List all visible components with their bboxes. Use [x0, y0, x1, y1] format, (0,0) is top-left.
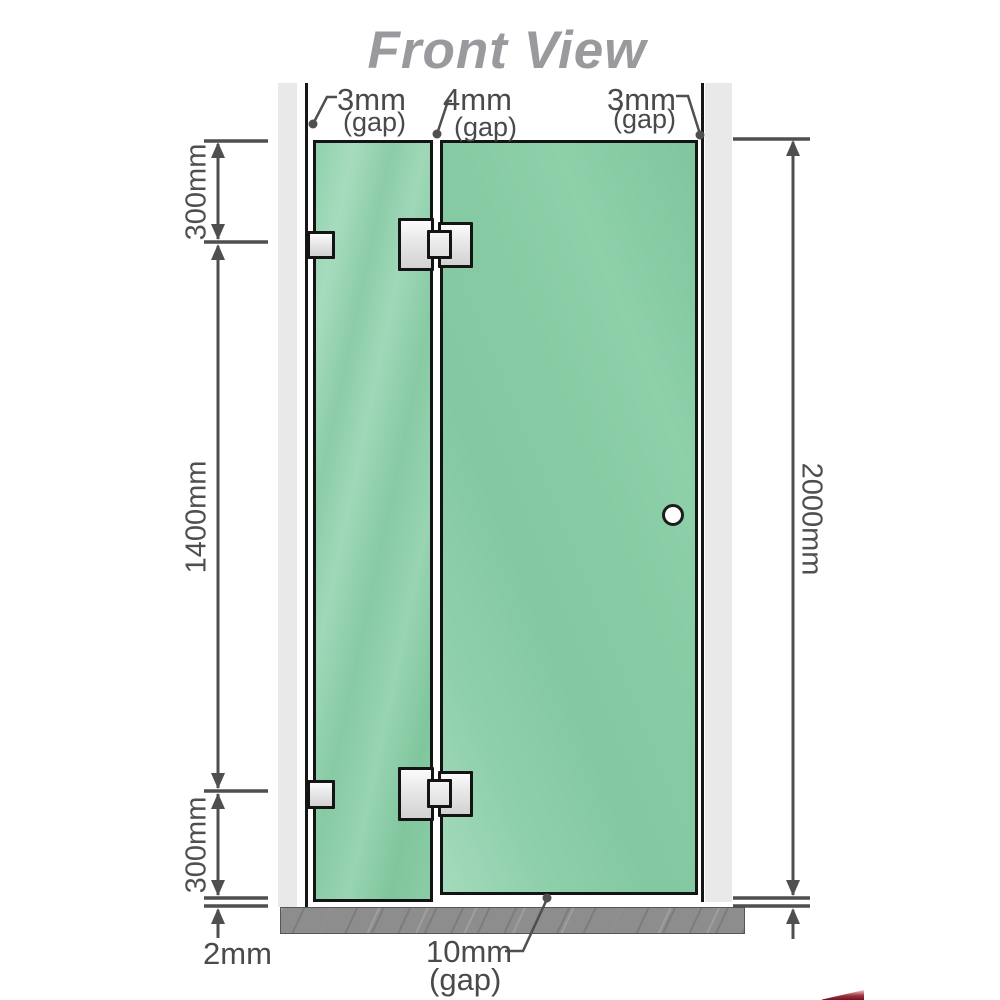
dimension-bottom-300mm: 300mm — [181, 797, 214, 894]
page-title: Front View — [368, 20, 647, 81]
shower-screen-front-view-diagram: Front View — [0, 0, 1000, 1000]
left-wall-channel — [278, 83, 297, 907]
gap-label-left-note: (gap) — [343, 107, 406, 138]
dimension-floor-clearance-2mm: 2mm — [203, 936, 272, 972]
door-knob — [662, 504, 684, 526]
hinge-bottom-clamp-icon — [427, 779, 452, 808]
left-dimension-chain — [204, 141, 268, 938]
dimension-middle-1400mm: 1400mm — [181, 461, 214, 574]
floor-base — [280, 907, 745, 934]
wall-bracket-bottom-icon — [307, 780, 335, 809]
gap-label-middle-note: (gap) — [454, 112, 517, 143]
dimension-overall-2000mm: 2000mm — [795, 463, 828, 576]
right-wall-edge-line — [701, 83, 704, 902]
wall-bracket-top-icon — [307, 231, 335, 259]
gap-label-right-note: (gap) — [613, 104, 676, 135]
hinge-top-clamp-icon — [427, 230, 452, 259]
door-glass-panel — [440, 140, 698, 895]
partial-logo-icon — [822, 990, 864, 1000]
right-wall-channel — [705, 83, 732, 902]
gap-label-bottom-note: (gap) — [429, 962, 501, 998]
dimension-top-300mm: 300mm — [181, 144, 214, 241]
